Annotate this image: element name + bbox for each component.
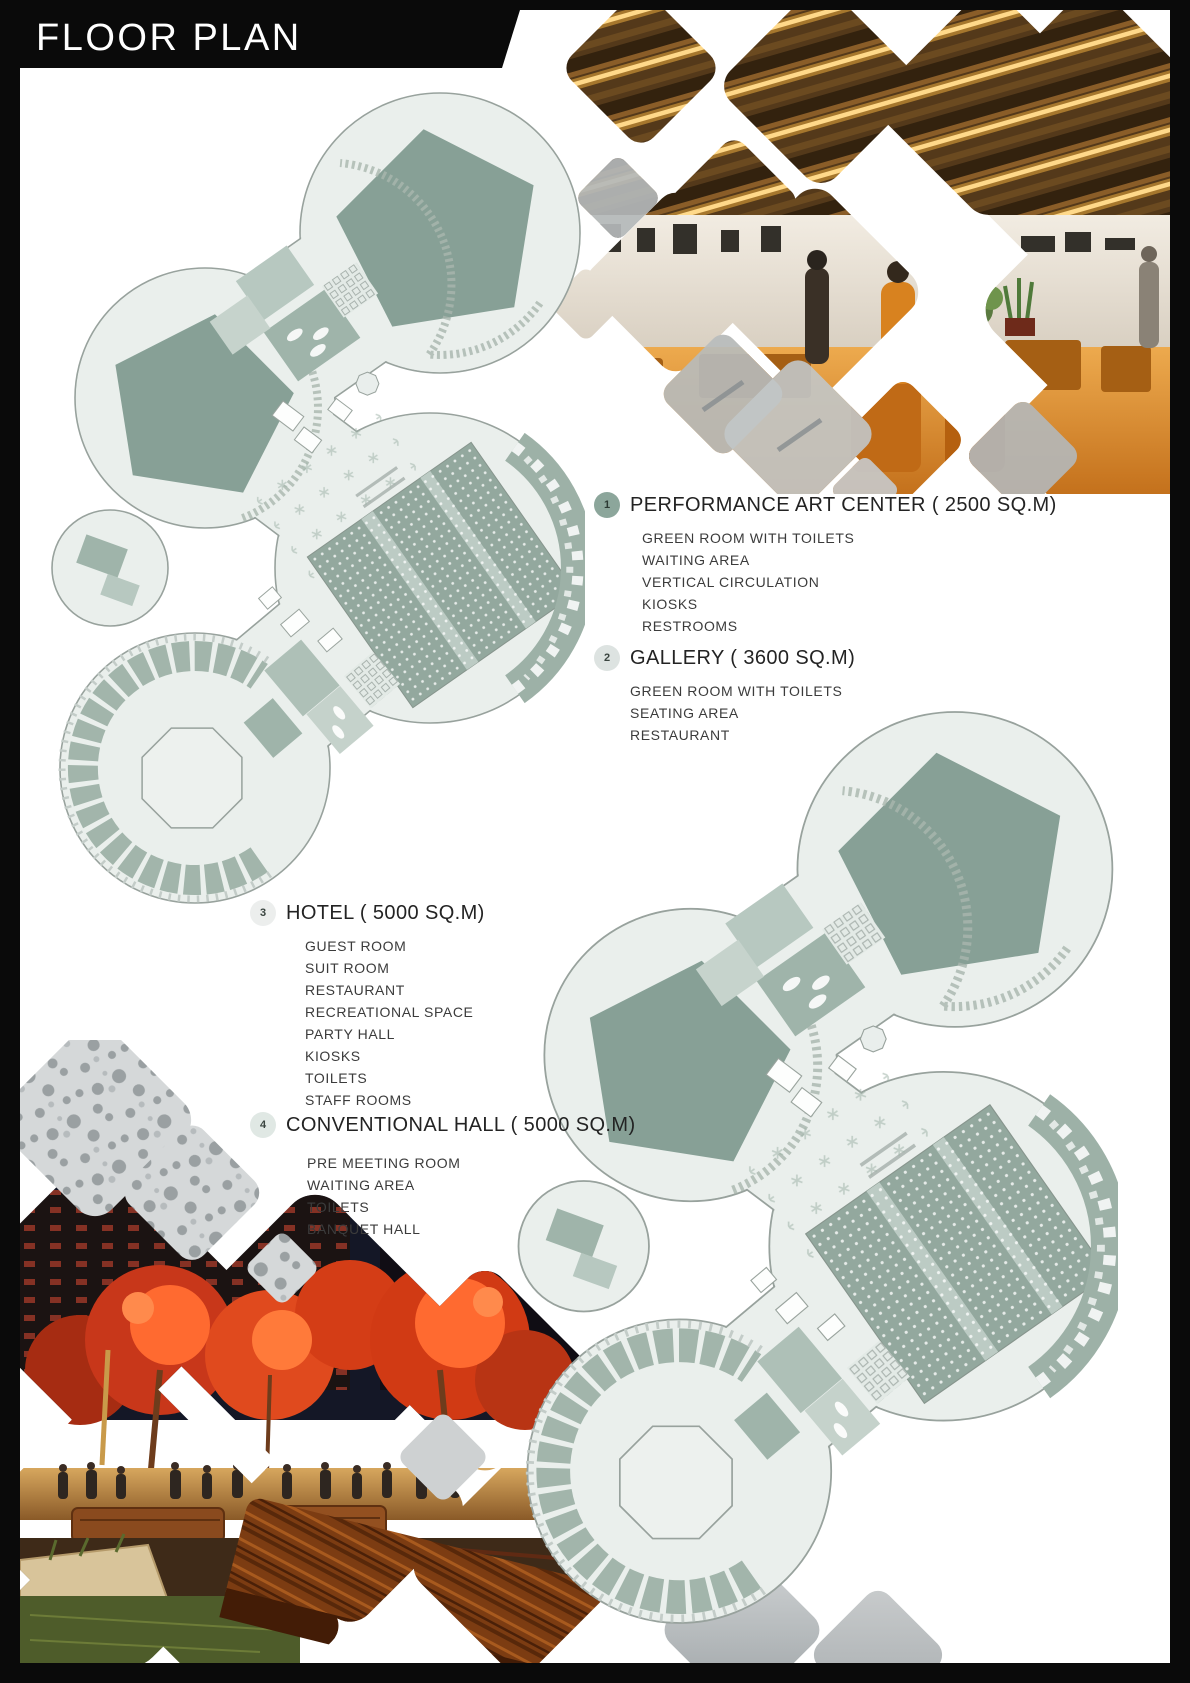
- legend-item: TOILETS: [307, 1196, 636, 1218]
- legend-item: VERTICAL CIRCULATION: [642, 571, 1057, 593]
- frame-bottom: [0, 1663, 1190, 1683]
- legend-item: WAITING AREA: [307, 1174, 636, 1196]
- legend-item: BANQUET HALL: [307, 1218, 636, 1240]
- legend-item: WAITING AREA: [642, 549, 1057, 571]
- legend-badge-3: 3: [250, 900, 276, 926]
- frame-top: [0, 0, 1190, 10]
- floor-plan-ground: [40, 78, 585, 918]
- legend-item: SUIT ROOM: [305, 957, 485, 979]
- legend-item: RECREATIONAL SPACE: [305, 1001, 485, 1023]
- legend-item: RESTAURANT: [630, 724, 855, 746]
- legend-badge-1: 1: [594, 492, 620, 518]
- legend-item: GREEN ROOM WITH TOILETS: [630, 680, 855, 702]
- legend-item: SEATING AREA: [630, 702, 855, 724]
- presentation-sheet: FLOOR PLAN 1 PERFORMANCE ART CENTER ( 25…: [0, 0, 1190, 1683]
- legend-section-conventional: 4 CONVENTIONAL HALL ( 5000 SQ.M) PRE MEE…: [250, 1112, 636, 1240]
- legend-item: GREEN ROOM WITH TOILETS: [642, 527, 1057, 549]
- title-banner: FLOOR PLAN: [20, 10, 520, 68]
- page-title: FLOOR PLAN: [20, 10, 520, 66]
- legend-badge-4: 4: [250, 1112, 276, 1138]
- frame-right: [1170, 0, 1190, 1683]
- legend-item: KIOSKS: [642, 593, 1057, 615]
- photo-collage-interior: [553, 10, 1170, 494]
- legend-label-2: GALLERY ( 3600 SQ.M): [630, 647, 855, 670]
- legend-item: PRE MEETING ROOM: [307, 1152, 636, 1174]
- legend-item: KIOSKS: [305, 1045, 485, 1067]
- legend-item: TOILETS: [305, 1067, 485, 1089]
- legend-section-gallery: 2 GALLERY ( 3600 SQ.M) GREEN ROOM WITH T…: [594, 645, 855, 746]
- frame-left: [0, 0, 20, 1683]
- legend-label-3: HOTEL ( 5000 SQ.M): [286, 902, 485, 925]
- legend-section-performance: 1 PERFORMANCE ART CENTER ( 2500 SQ.M) GR…: [594, 492, 1057, 637]
- legend-item: STAFF ROOMS: [305, 1089, 485, 1111]
- legend-item: RESTROOMS: [642, 615, 1057, 637]
- legend-item: RESTAURANT: [305, 979, 485, 1001]
- legend-item: GUEST ROOM: [305, 935, 485, 957]
- legend-item: PARTY HALL: [305, 1023, 485, 1045]
- legend-label-4: CONVENTIONAL HALL ( 5000 SQ.M): [286, 1114, 636, 1137]
- legend-section-hotel: 3 HOTEL ( 5000 SQ.M) GUEST ROOM SUIT ROO…: [250, 900, 485, 1111]
- legend-badge-2: 2: [594, 645, 620, 671]
- legend-label-1: PERFORMANCE ART CENTER ( 2500 SQ.M): [630, 494, 1057, 517]
